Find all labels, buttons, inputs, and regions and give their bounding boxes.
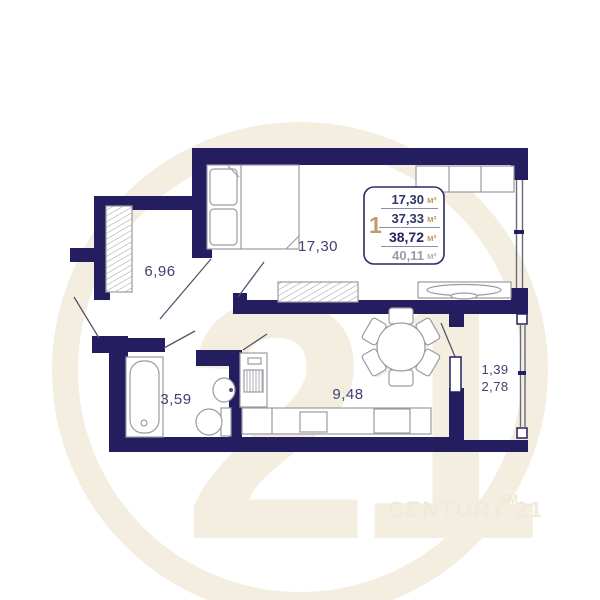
info-rooms-count: 1 — [369, 212, 382, 238]
info-area-no-balcony: 37,33 — [391, 211, 424, 226]
hall-wardrobe — [106, 206, 132, 292]
info-area-full-balcony-unit: м² — [427, 251, 437, 261]
watermark-sm-mark: SM — [500, 492, 518, 506]
info-total-area: 38,72 — [389, 229, 424, 245]
room-label-kitchen: 9,48 — [332, 386, 363, 403]
kitchen-sink — [300, 412, 327, 432]
tv-console — [418, 282, 511, 299]
info-area-no-balcony-unit: м² — [427, 214, 437, 224]
floor-plan-page: 21 CENTURY 21 SM — [0, 0, 600, 600]
info-living-area: 17,30 — [391, 192, 424, 207]
room-label-living: 17,30 — [298, 238, 338, 255]
wall-balcony-divider-top — [449, 314, 464, 327]
room-label-hallway: 6,96 — [144, 263, 175, 280]
chair — [389, 370, 413, 386]
hatched-cabinet — [278, 282, 358, 302]
balcony-door-leaf — [450, 357, 461, 392]
wall-balcony-divider-bottom — [449, 388, 464, 442]
watermark-brand-text: CENTURY 21 — [388, 497, 544, 522]
double-bed — [207, 165, 299, 249]
bathroom-sink — [213, 378, 235, 402]
wall-living-corner — [233, 293, 247, 313]
wall-bath-left — [109, 336, 128, 452]
round-table — [377, 323, 425, 371]
wall-balcony-bottom — [449, 440, 528, 452]
chair — [389, 308, 413, 324]
room-label-bathroom: 3,59 — [160, 391, 191, 408]
wall-top — [192, 148, 528, 165]
tall-cabinet — [240, 353, 267, 407]
floor-plan: 21 CENTURY 21 SM — [0, 0, 600, 600]
bathtub — [126, 357, 163, 437]
room-label-balcony-1: 1,39 — [482, 362, 509, 377]
info-area-full-balcony: 40,11 — [392, 248, 424, 263]
room-label-balcony-2: 2,78 — [482, 379, 509, 394]
info-total-area-unit: м² — [427, 233, 437, 243]
kitchen-counter — [242, 408, 431, 434]
info-living-area-unit: м² — [427, 195, 437, 205]
wall-living-bottom — [233, 300, 528, 314]
wall-entry-stub — [70, 248, 94, 262]
wall-bottom — [109, 437, 464, 452]
toilet — [196, 408, 231, 436]
apartment-info-box: 1 17,30 м² 37,33 м² 38,72 м² 40,11 м² — [364, 187, 444, 264]
kitchen-stove — [374, 409, 410, 433]
wall-bath-top — [109, 338, 165, 352]
